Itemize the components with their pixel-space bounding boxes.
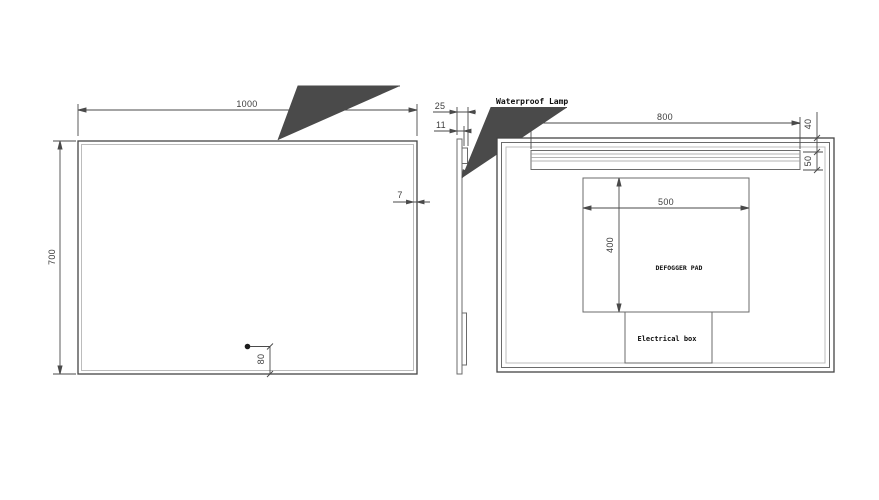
dim-width-text: 1000 (236, 99, 257, 109)
dim-lamp-height-text: 50 (803, 156, 813, 167)
dim-lamp-offset-text: 40 (803, 119, 813, 130)
dim-depth-text: 25 (435, 101, 446, 111)
lamp-leader-line (278, 86, 400, 140)
defogger-pad-label: DEFOGGER PAD (656, 264, 703, 272)
side-lamp-housing (462, 148, 468, 164)
lamp-label-text: Waterproof Lamp (496, 97, 568, 106)
dim-pad-width-text: 500 (658, 197, 674, 207)
side-mirror-profile (457, 139, 462, 374)
side-electrical-box-profile (462, 313, 467, 365)
lamp-strip (531, 151, 800, 170)
drawing-page: 1000 700 7 80 25 11 Waterproof Lamp 800 … (0, 0, 879, 500)
dim-panel-text: 11 (436, 120, 446, 130)
back-view: 800 40 50 500 400 DEFOGGER PAD Electrica… (497, 112, 834, 372)
dim-sensor-text: 80 (256, 354, 266, 365)
dim-edge-text: 7 (397, 190, 402, 200)
front-view: 1000 700 7 80 (47, 86, 430, 377)
electrical-box-label: Electrical box (637, 335, 697, 343)
touch-sensor-dot (245, 344, 251, 350)
dim-pad-height-text: 400 (605, 237, 615, 253)
dim-lamp-length-text: 800 (657, 112, 673, 122)
technical-drawing-canvas: 1000 700 7 80 25 11 Waterproof Lamp 800 … (0, 0, 879, 500)
dim-height-text: 700 (47, 249, 57, 265)
front-mirror-outline (78, 141, 417, 374)
